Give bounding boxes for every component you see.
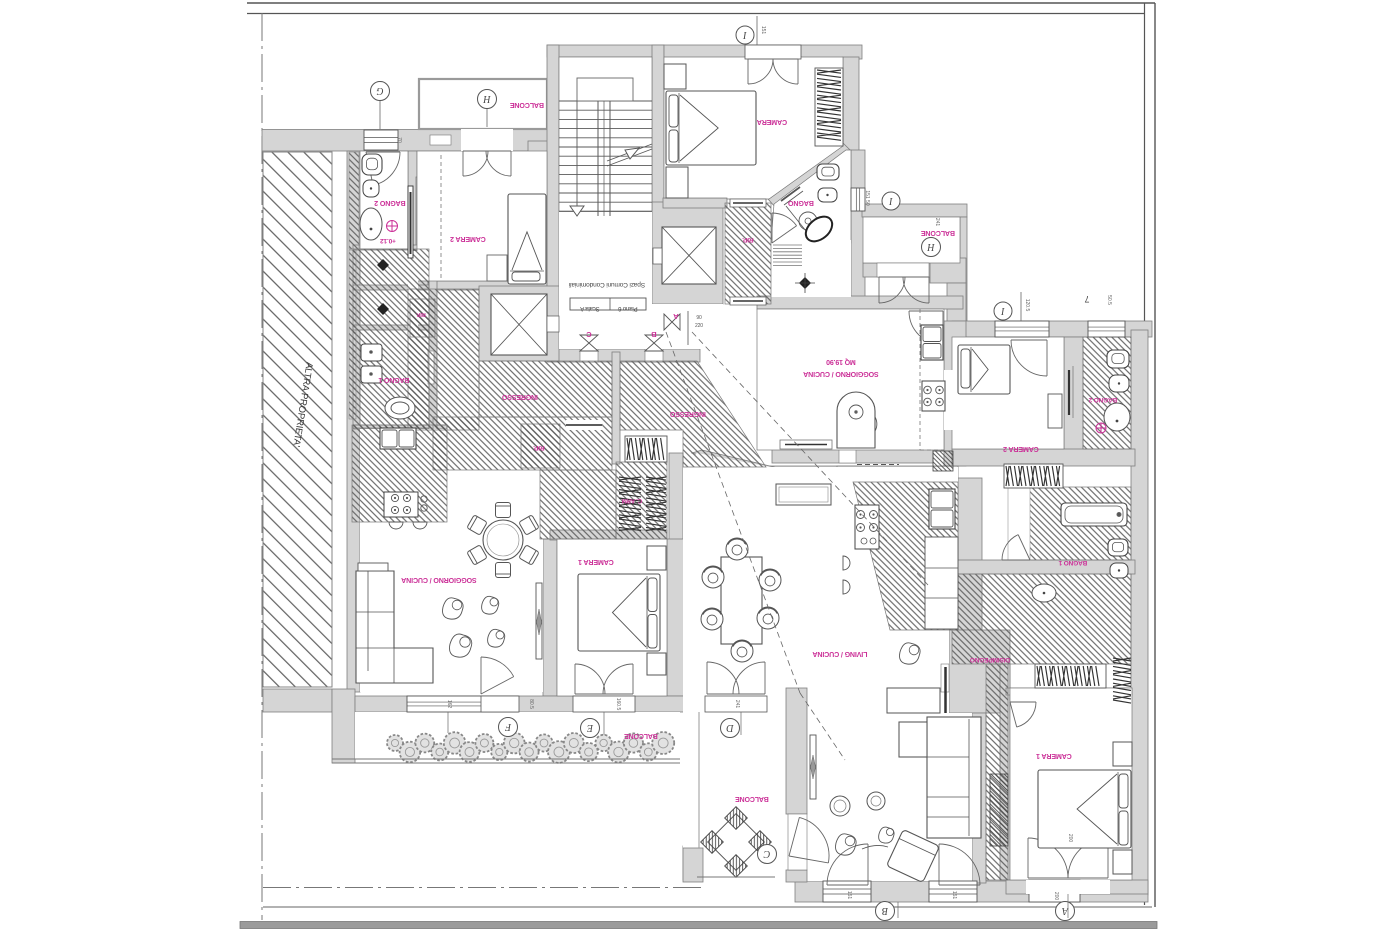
svg-text:F: F	[504, 721, 512, 732]
svg-text:G: G	[376, 85, 383, 96]
svg-text:151: 151	[760, 26, 766, 35]
svg-text:I: I	[889, 195, 894, 206]
svg-text:BAGNO 2: BAGNO 2	[374, 199, 405, 207]
svg-text:E: E	[587, 722, 594, 733]
svg-text:Piano 6: Piano 6	[618, 305, 638, 311]
svg-text:151: 151	[846, 891, 852, 900]
svg-text:D: D	[726, 722, 735, 733]
svg-text:LIVING / CUCINA: LIVING / CUCINA	[813, 650, 868, 658]
svg-text:90: 90	[696, 315, 702, 321]
svg-text:241: 241	[734, 700, 740, 709]
svg-text:200: 200	[1067, 834, 1073, 843]
svg-text:INGRESSO: INGRESSO	[501, 393, 537, 400]
svg-text:I: I	[1001, 305, 1006, 316]
svg-text:CAMERA: CAMERA	[757, 118, 787, 126]
svg-text:DISIMPEGNO: DISIMPEGNO	[970, 656, 1010, 663]
svg-text:B: B	[882, 905, 888, 916]
svg-text:CAMERA 1: CAMERA 1	[578, 558, 614, 566]
svg-text:200: 200	[1053, 892, 1059, 901]
svg-text:241: 241	[934, 218, 940, 227]
svg-text:BAGNO: BAGNO	[788, 199, 814, 207]
svg-text:Spazi Comuni Condominiali: Spazi Comuni Condominiali	[569, 281, 645, 288]
svg-text:151: 151	[951, 891, 957, 900]
svg-text:INGRESSO: INGRESSO	[669, 410, 705, 417]
svg-text:CAMERA 1: CAMERA 1	[1036, 752, 1072, 760]
svg-text:80.5: 80.5	[528, 699, 534, 709]
svg-text:162: 162	[446, 700, 452, 709]
svg-text:+0.12: +0.12	[380, 237, 396, 244]
svg-text:B: B	[651, 330, 657, 339]
svg-text:RIP.: RIP.	[416, 311, 426, 317]
svg-text:BALCONE: BALCONE	[921, 229, 955, 237]
svg-text:BALCONE: BALCONE	[624, 732, 658, 739]
svg-text:RIP.: RIP.	[742, 236, 754, 243]
svg-text:50.5: 50.5	[1106, 295, 1112, 305]
svg-text:C. ARM: C. ARM	[622, 497, 642, 503]
svg-text:CAMERA 2: CAMERA 2	[450, 235, 486, 243]
svg-text:A: A	[673, 312, 679, 321]
svg-text:BAGNO 1: BAGNO 1	[378, 376, 409, 383]
svg-text:H: H	[483, 93, 492, 104]
svg-text:C: C	[586, 330, 592, 339]
svg-text:I: I	[743, 29, 748, 40]
svg-text:SOGGIORNO / CUCINA: SOGGIORNO / CUCINA	[803, 370, 878, 378]
svg-text:BALCONE: BALCONE	[735, 795, 769, 802]
svg-text:H: H	[927, 241, 936, 252]
svg-text:120.5: 120.5	[1024, 299, 1030, 312]
svg-text:220: 220	[695, 323, 703, 329]
svg-text:70: 70	[396, 137, 402, 143]
svg-text:BAGNO 1: BAGNO 1	[1058, 559, 1087, 566]
svg-text:C: C	[763, 848, 770, 859]
svg-text:RIP.: RIP.	[533, 444, 545, 451]
svg-text:CAMERA 2: CAMERA 2	[1003, 445, 1039, 453]
svg-text:SOGGIORNO / CUCINA: SOGGIORNO / CUCINA	[401, 576, 476, 584]
svg-text:160.5: 160.5	[615, 698, 621, 711]
svg-text:MQ 19.90: MQ 19.90	[826, 358, 856, 365]
svg-text:BAGNO 2: BAGNO 2	[1088, 396, 1117, 403]
svg-text:Scala A: Scala A	[580, 305, 599, 311]
svg-text:151 50: 151 50	[864, 190, 870, 206]
svg-text:7: 7	[1084, 294, 1089, 304]
svg-text:BALCONE: BALCONE	[510, 101, 544, 109]
